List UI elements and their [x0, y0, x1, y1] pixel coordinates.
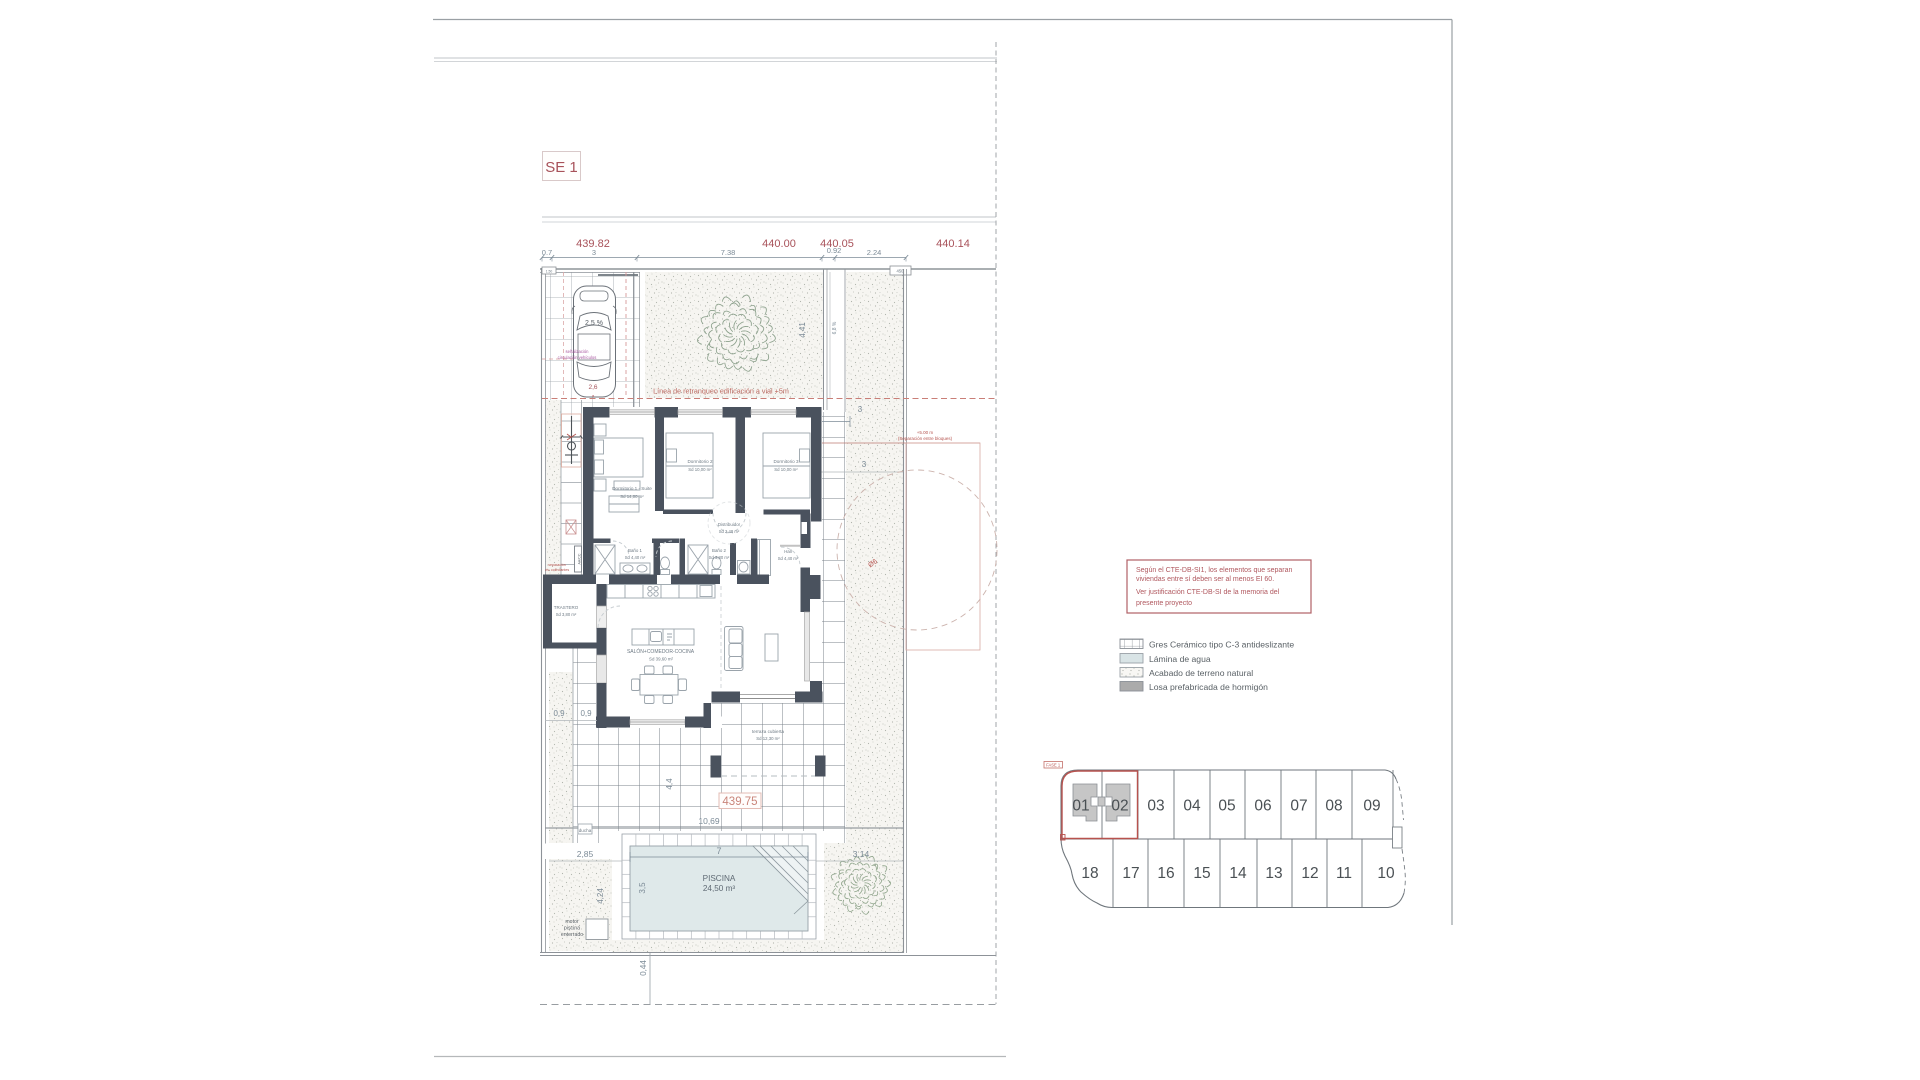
svg-text:señalización: señalización: [565, 349, 589, 354]
svg-text:Acabado de terreno natural: Acabado de terreno natural: [1149, 668, 1253, 678]
svg-text:17: 17: [1122, 865, 1139, 882]
svg-text:FASE 1: FASE 1: [1046, 763, 1061, 768]
svg-text:Ver justificación CTE-DB-SI de: Ver justificación CTE-DB-SI de la memori…: [1136, 589, 1280, 596]
svg-text:16: 16: [1157, 865, 1174, 882]
svg-text:10: 10: [1377, 865, 1395, 882]
svg-text:Dormitorio 1 - Suite: Dormitorio 1 - Suite: [612, 486, 652, 491]
svg-text:440.00: 440.00: [762, 238, 796, 250]
svg-text:7.38: 7.38: [721, 248, 736, 257]
svg-text:14: 14: [1229, 865, 1247, 882]
svg-text:2,6: 2,6: [588, 384, 597, 391]
svg-text:Baño 1: Baño 1: [628, 548, 642, 553]
svg-text:07: 07: [1290, 798, 1307, 815]
svg-text:440.14: 440.14: [936, 238, 970, 250]
svg-text:(Separación entre bloques): (Separación entre bloques): [898, 436, 953, 441]
svg-text:circulación vehículos: circulación vehículos: [558, 355, 597, 360]
svg-text:Dormitorio 3: Dormitorio 3: [773, 459, 798, 464]
svg-text:PISCINA: PISCINA: [703, 874, 736, 883]
svg-text:Lámina de agua: Lámina de agua: [1149, 654, 1211, 664]
svg-text:13: 13: [1265, 865, 1282, 882]
svg-text:Baño 2: Baño 2: [712, 548, 726, 553]
svg-text:4,24: 4,24: [596, 888, 605, 904]
svg-text:0.7: 0.7: [542, 248, 552, 257]
svg-text:Distribuidor: Distribuidor: [718, 522, 741, 527]
svg-text:Sd 2,40 m²: Sd 2,40 m²: [719, 529, 740, 534]
svg-text:ducha: ducha: [579, 828, 592, 833]
svg-text:piscina: piscina: [564, 926, 580, 932]
svg-text:AA/CC: AA/CC: [578, 553, 582, 564]
svg-text:10,69: 10,69: [698, 816, 720, 826]
svg-text:Línea de retranqueo edificació: Línea de retranqueo edificación a vial +…: [653, 387, 789, 396]
svg-text:SE 1: SE 1: [545, 159, 578, 176]
svg-text:motor: motor: [565, 919, 579, 925]
svg-text:7: 7: [716, 846, 721, 856]
svg-text:3: 3: [858, 405, 863, 414]
svg-text:Sd 4,40 m²: Sd 4,40 m²: [625, 555, 646, 560]
svg-text:+5.00 m: +5.00 m: [917, 430, 934, 435]
svg-text:6,8 %: 6,8 %: [832, 321, 838, 334]
svg-text:24,50 m³: 24,50 m³: [703, 884, 736, 893]
svg-text:Sd 10,00 m²: Sd 10,00 m²: [688, 467, 712, 472]
svg-text:439.75: 439.75: [722, 796, 757, 808]
svg-text:4,4: 4,4: [665, 778, 674, 790]
svg-text:Sd 4,40 m²: Sd 4,40 m²: [778, 556, 799, 561]
svg-text:03: 03: [1147, 798, 1164, 815]
svg-text:viviendas entre sí deben ser a: viviendas entre sí deben ser al menos EI…: [1136, 576, 1274, 583]
svg-text:viv. colindantes: viv. colindantes: [545, 568, 570, 572]
svg-text:enterrado: enterrado: [561, 932, 583, 938]
svg-text:Sd 3,80 m²: Sd 3,80 m²: [556, 612, 577, 617]
svg-text:06: 06: [1254, 798, 1271, 815]
svg-text:18: 18: [1081, 865, 1098, 882]
svg-text:Según el CTE-DB-SI1, los eleme: Según el CTE-DB-SI1, los elementos que s…: [1136, 567, 1293, 574]
svg-text:01: 01: [1072, 798, 1089, 815]
svg-text:Dormitorio 2: Dormitorio 2: [687, 459, 712, 464]
svg-text:Gres Cerámico tipo C-3 antides: Gres Cerámico tipo C-3 antideslizante: [1149, 640, 1294, 650]
svg-text:Sd 3,80 m²: Sd 3,80 m²: [709, 555, 730, 560]
svg-text:3: 3: [862, 460, 867, 469]
svg-text:3,14: 3,14: [853, 849, 870, 859]
svg-text:0,9: 0,9: [580, 709, 592, 718]
svg-text:Sd 14,00 m²: Sd 14,00 m²: [620, 494, 644, 499]
svg-text:1.50: 1.50: [546, 270, 553, 274]
svg-text:3,5: 3,5: [638, 882, 647, 894]
svg-text:0,9: 0,9: [553, 709, 565, 718]
svg-text:Losa prefabricada de hormigón: Losa prefabricada de hormigón: [1149, 682, 1268, 692]
svg-text:12: 12: [1301, 865, 1318, 882]
svg-text:15: 15: [1193, 865, 1210, 882]
svg-text:presente proyecto: presente proyecto: [1136, 600, 1192, 607]
svg-text:Hall: Hall: [784, 549, 792, 554]
svg-text:SALÓN+COMEDOR-COCINA: SALÓN+COMEDOR-COCINA: [627, 648, 695, 655]
svg-text:08: 08: [1325, 798, 1342, 815]
svg-text:2,85: 2,85: [577, 849, 594, 859]
svg-text:3: 3: [592, 248, 596, 257]
svg-text:04: 04: [1183, 798, 1201, 815]
svg-text:0,44: 0,44: [639, 960, 648, 976]
svg-text:05: 05: [1218, 798, 1235, 815]
svg-text:4,41: 4,41: [798, 322, 807, 338]
svg-text:11: 11: [1336, 865, 1352, 882]
svg-text:terraza cubierta: terraza cubierta: [752, 729, 784, 734]
svg-text:separación: separación: [548, 563, 566, 567]
svg-text:Sd 39,60 m²: Sd 39,60 m²: [649, 657, 673, 662]
svg-text:TRASTERO: TRASTERO: [554, 605, 579, 610]
svg-text:Sd 12,30 m²: Sd 12,30 m²: [756, 736, 780, 741]
svg-text:0.92: 0.92: [827, 246, 842, 255]
svg-text:2.24: 2.24: [867, 248, 882, 257]
svg-text:02: 02: [1111, 798, 1128, 815]
svg-text:09: 09: [1363, 798, 1380, 815]
svg-text:2,5 %: 2,5 %: [585, 320, 603, 327]
svg-text:Sd 10,00 m²: Sd 10,00 m²: [774, 467, 798, 472]
